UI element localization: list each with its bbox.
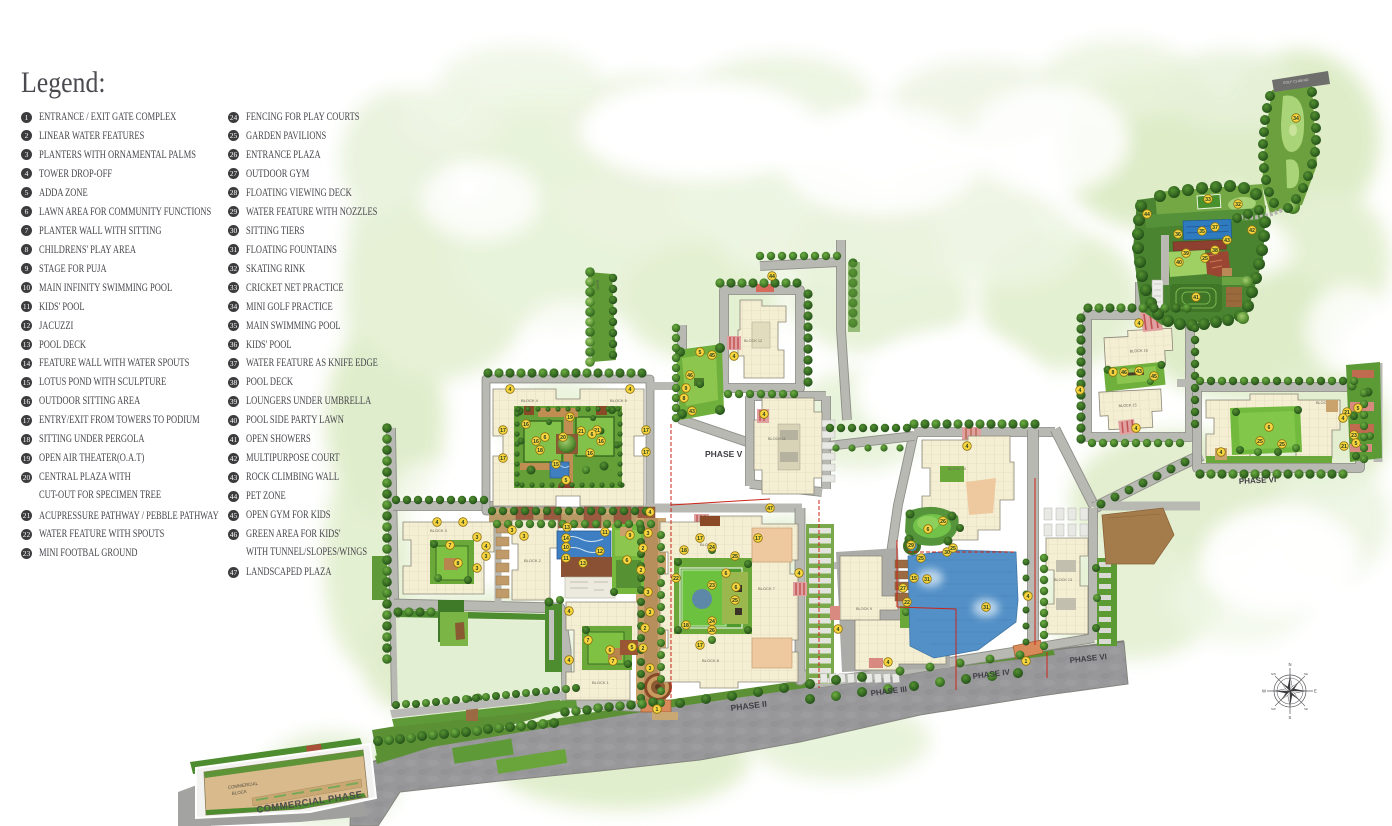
svg-text:9: 9 [685, 386, 688, 392]
svg-text:BLOCK 2: BLOCK 2 [524, 558, 542, 563]
svg-text:BLOCK 7: BLOCK 7 [758, 586, 776, 591]
svg-text:25: 25 [950, 546, 956, 552]
svg-text:18: 18 [537, 448, 543, 454]
svg-text:16: 16 [523, 422, 529, 428]
svg-text:19: 19 [567, 415, 573, 421]
svg-text:4: 4 [462, 520, 465, 526]
svg-text:15: 15 [553, 462, 559, 468]
svg-text:6: 6 [927, 527, 930, 533]
svg-text:17: 17 [500, 456, 506, 462]
svg-text:BLOCK 1: BLOCK 1 [592, 680, 610, 685]
svg-text:44: 44 [1144, 212, 1150, 218]
svg-text:3: 3 [649, 666, 652, 672]
svg-text:3: 3 [523, 534, 526, 540]
svg-text:30: 30 [944, 550, 950, 556]
svg-text:BLOCK 4: BLOCK 4 [521, 398, 539, 403]
svg-text:5: 5 [565, 478, 568, 484]
svg-text:47: 47 [767, 506, 773, 512]
svg-text:20: 20 [560, 435, 566, 441]
svg-text:40: 40 [1176, 260, 1182, 266]
svg-text:4: 4 [649, 510, 652, 516]
svg-text:43: 43 [1224, 238, 1230, 244]
svg-text:14: 14 [563, 536, 569, 542]
svg-text:4: 4 [568, 609, 571, 615]
svg-text:6: 6 [591, 432, 594, 438]
svg-text:3: 3 [476, 566, 479, 572]
svg-text:13: 13 [580, 561, 586, 567]
svg-text:4: 4 [485, 544, 488, 550]
svg-text:21: 21 [1341, 444, 1347, 450]
svg-text:4: 4 [887, 660, 890, 666]
svg-text:38: 38 [1212, 248, 1218, 254]
svg-text:17: 17 [697, 643, 703, 649]
svg-text:5: 5 [699, 350, 702, 356]
svg-text:31: 31 [924, 577, 930, 583]
svg-text:BLOCK 12: BLOCK 12 [744, 339, 762, 343]
svg-text:3: 3 [647, 531, 650, 537]
svg-text:17: 17 [500, 428, 506, 434]
svg-text:BLOCK 9: BLOCK 9 [856, 607, 872, 611]
svg-text:5: 5 [1357, 406, 1360, 412]
svg-text:17: 17 [643, 450, 649, 456]
svg-text:24: 24 [709, 545, 715, 551]
svg-text:17: 17 [755, 536, 761, 542]
svg-text:16: 16 [587, 451, 593, 457]
svg-text:41: 41 [1193, 295, 1199, 301]
svg-text:SW: SW [1271, 707, 1276, 711]
svg-text:15: 15 [911, 576, 917, 582]
svg-text:33: 33 [1205, 197, 1211, 203]
svg-text:BLOCK 13: BLOCK 13 [1054, 578, 1072, 582]
svg-text:NW: NW [1271, 672, 1276, 676]
svg-text:6: 6 [725, 571, 728, 577]
svg-text:6: 6 [544, 435, 547, 441]
svg-text:36: 36 [1175, 232, 1181, 238]
svg-text:2: 2 [642, 546, 645, 552]
svg-text:NE: NE [1304, 672, 1308, 676]
svg-text:4: 4 [1079, 388, 1082, 394]
svg-text:46: 46 [1121, 370, 1127, 376]
svg-text:31: 31 [983, 605, 989, 611]
svg-text:35: 35 [1199, 229, 1205, 235]
svg-text:27: 27 [900, 586, 906, 592]
svg-text:8: 8 [683, 396, 686, 402]
svg-text:4: 4 [1135, 426, 1138, 432]
svg-text:SE: SE [1304, 707, 1308, 711]
svg-text:25: 25 [1279, 442, 1285, 448]
svg-text:45: 45 [709, 353, 715, 359]
svg-text:25: 25 [732, 598, 738, 604]
svg-text:39: 39 [1183, 251, 1189, 257]
svg-text:BLOCK 3: BLOCK 3 [430, 528, 448, 533]
svg-text:W: W [1262, 689, 1266, 694]
svg-text:1: 1 [656, 707, 659, 713]
svg-text:5: 5 [631, 645, 634, 651]
svg-text:43: 43 [1136, 369, 1142, 375]
svg-text:BLOCK 11: BLOCK 11 [768, 437, 786, 441]
svg-text:8: 8 [1112, 370, 1115, 376]
svg-text:29: 29 [908, 543, 914, 549]
svg-text:43: 43 [689, 409, 695, 415]
svg-text:18: 18 [681, 548, 687, 554]
svg-text:3: 3 [476, 535, 479, 541]
svg-text:37: 37 [1212, 225, 1218, 231]
svg-text:6: 6 [1268, 425, 1271, 431]
svg-text:7: 7 [612, 659, 615, 665]
svg-text:25: 25 [1257, 439, 1263, 445]
svg-text:23: 23 [709, 583, 715, 589]
svg-text:22: 22 [673, 576, 679, 582]
svg-text:4: 4 [763, 412, 766, 418]
svg-text:4: 4 [568, 658, 571, 664]
svg-text:4: 4 [1027, 594, 1030, 600]
svg-text:26: 26 [709, 628, 715, 634]
svg-text:10: 10 [563, 545, 569, 551]
svg-text:2: 2 [640, 568, 643, 574]
svg-text:4: 4 [966, 444, 969, 450]
svg-text:18: 18 [683, 623, 689, 629]
svg-text:25: 25 [918, 556, 924, 562]
svg-text:46: 46 [687, 373, 693, 379]
svg-text:4: 4 [509, 387, 512, 393]
svg-text:BLOCK 5: BLOCK 5 [610, 398, 628, 403]
svg-text:6: 6 [626, 558, 629, 564]
svg-text:11: 11 [563, 556, 569, 562]
svg-text:3: 3 [511, 528, 514, 534]
svg-text:PHASE V: PHASE V [705, 449, 743, 459]
svg-text:8: 8 [457, 561, 460, 567]
svg-text:6: 6 [609, 648, 612, 654]
svg-text:2: 2 [642, 646, 645, 652]
svg-text:4: 4 [436, 520, 439, 526]
svg-text:4: 4 [1342, 416, 1345, 422]
svg-text:21: 21 [578, 429, 584, 435]
svg-text:34: 34 [1293, 116, 1299, 122]
svg-text:17: 17 [643, 428, 649, 434]
svg-text:25: 25 [732, 554, 738, 560]
svg-text:26: 26 [940, 519, 946, 525]
svg-text:BLOCK 8: BLOCK 8 [702, 658, 720, 663]
svg-text:9: 9 [629, 533, 632, 539]
svg-text:S: S [1289, 715, 1292, 720]
svg-text:17: 17 [697, 536, 703, 542]
svg-text:5: 5 [1355, 441, 1358, 447]
svg-text:4: 4 [733, 354, 736, 360]
svg-text:1: 1 [1025, 659, 1028, 665]
svg-text:24: 24 [709, 619, 715, 625]
svg-text:25: 25 [1202, 256, 1208, 262]
svg-text:6: 6 [735, 585, 738, 591]
svg-text:BLOCK 10: BLOCK 10 [948, 467, 966, 471]
svg-text:42: 42 [1249, 228, 1255, 234]
svg-text:N: N [1289, 662, 1292, 667]
svg-text:23: 23 [1351, 433, 1357, 439]
svg-text:4: 4 [629, 387, 632, 393]
svg-text:2: 2 [644, 626, 647, 632]
svg-text:3: 3 [485, 554, 488, 560]
svg-text:7: 7 [587, 638, 590, 644]
svg-text:22: 22 [904, 600, 910, 606]
svg-text:32: 32 [1235, 202, 1241, 208]
svg-text:45: 45 [1151, 374, 1157, 380]
svg-text:44: 44 [769, 274, 775, 280]
svg-text:4: 4 [837, 627, 840, 633]
svg-text:4: 4 [1220, 450, 1223, 456]
svg-text:3: 3 [647, 590, 650, 596]
svg-text:3: 3 [649, 610, 652, 616]
svg-text:16: 16 [533, 439, 539, 445]
svg-text:E: E [1314, 689, 1317, 694]
svg-text:13: 13 [564, 525, 570, 531]
svg-text:4: 4 [798, 571, 801, 577]
svg-text:7: 7 [449, 543, 452, 549]
svg-text:12: 12 [597, 549, 603, 555]
svg-text:16: 16 [598, 439, 604, 445]
svg-text:11: 11 [602, 530, 608, 536]
svg-text:4: 4 [1138, 321, 1141, 327]
